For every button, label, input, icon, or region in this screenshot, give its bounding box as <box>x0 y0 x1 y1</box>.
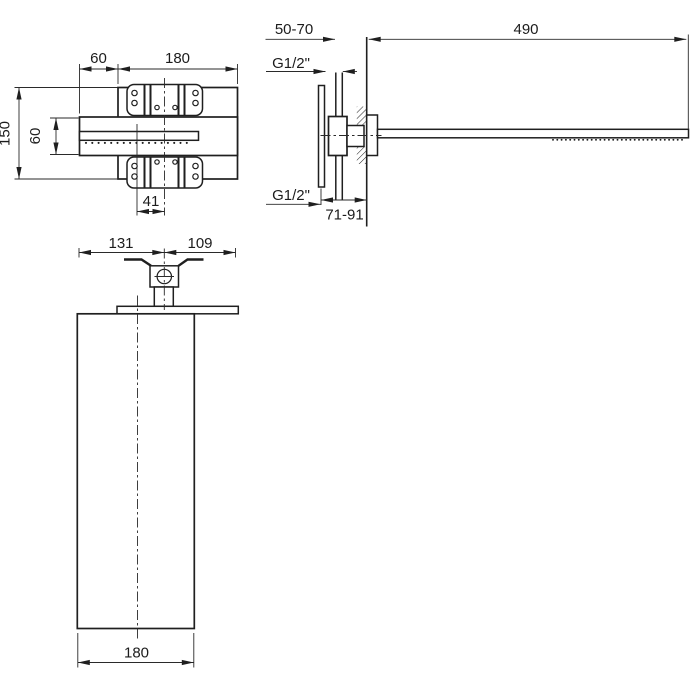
dim-label-right-of-axis: 109 <box>187 235 212 252</box>
dim-label-left-of-axis: 131 <box>108 235 133 252</box>
wall-hatch-top <box>357 107 367 126</box>
dim-label-arm-length: 490 <box>513 21 538 38</box>
shower-arm <box>378 129 689 138</box>
dim-label-thread-top: G1/2" <box>272 55 310 72</box>
waterfall-panel-edge <box>80 132 199 141</box>
cover-plate-edge <box>319 86 325 188</box>
waterfall-panel-front <box>77 314 194 629</box>
valve-body <box>329 117 348 156</box>
dim-label-overhang: 60 <box>90 50 107 67</box>
dim-label-panel-width: 180 <box>124 645 149 662</box>
dim-label-install-depth: 71-91 <box>325 207 363 224</box>
dim-label-thread-bottom: G1/2" <box>272 187 310 204</box>
technical-drawing: 60 180 150 60 41 <box>0 0 700 700</box>
dim-label-offset: 41 <box>143 193 160 210</box>
drawing-canvas: 60 180 150 60 41 <box>0 0 700 700</box>
mounting-plate-front <box>117 306 238 314</box>
connection-stub <box>347 126 364 147</box>
dim-label-wall-clearance: 50-70 <box>275 21 313 38</box>
inlet-stub-front <box>154 287 173 306</box>
dim-label-depth: 150 <box>0 121 14 146</box>
wall-hatch-bottom <box>357 147 367 165</box>
dim-label-band-depth: 60 <box>27 128 44 145</box>
dim-label-plate-width: 180 <box>165 50 190 67</box>
